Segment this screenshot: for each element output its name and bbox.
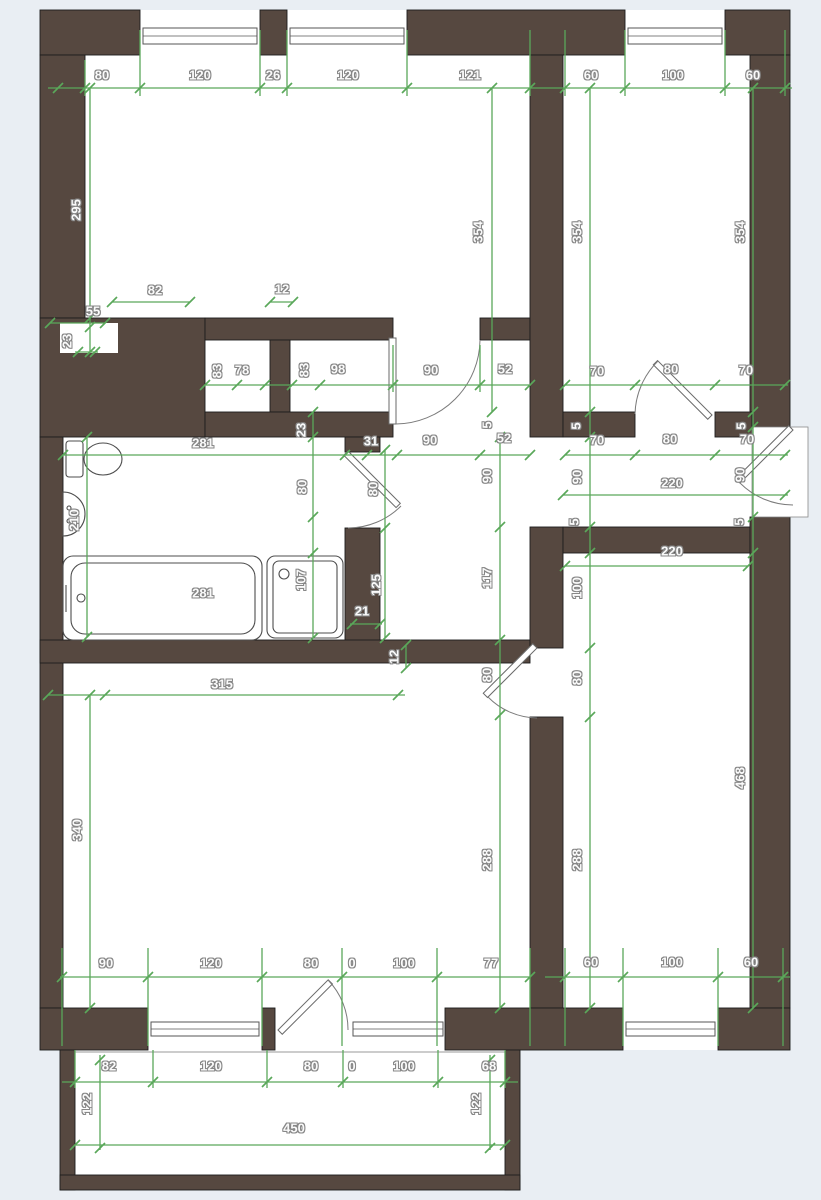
dimension-label: 121 xyxy=(459,69,481,82)
window xyxy=(290,28,404,44)
dimension-label: 450 xyxy=(283,1122,305,1135)
dimension-label: 70 xyxy=(590,365,604,378)
dimension-label: 98 xyxy=(331,363,345,376)
dimension-label: 21 xyxy=(355,605,369,618)
dimension-label: 120 xyxy=(337,69,359,82)
dimension-label: 12 xyxy=(275,283,289,296)
window xyxy=(143,28,257,44)
bathtub xyxy=(63,556,262,640)
dimension-label: 90 xyxy=(99,957,113,970)
dimension-label: 288 xyxy=(481,849,494,871)
dimension-label: 100 xyxy=(393,957,415,970)
window xyxy=(626,1022,715,1036)
floor-plan-drawing xyxy=(0,0,821,1200)
window xyxy=(628,28,722,44)
dimension-label: 295 xyxy=(70,199,83,221)
dimension-label: 281 xyxy=(192,437,214,450)
dimension-label: 80 xyxy=(304,1060,318,1073)
dimension-label: 70 xyxy=(739,364,753,377)
dimension-label: 52 xyxy=(497,432,511,445)
dimension-label: 90 xyxy=(424,364,438,377)
dimension-label: 125 xyxy=(370,574,383,596)
dimension-label: 354 xyxy=(472,221,485,243)
dimension-label: 23 xyxy=(61,334,74,348)
dimension-label: 220 xyxy=(661,545,683,558)
dimension-label: 60 xyxy=(744,956,758,969)
dimension-label: 288 xyxy=(571,849,584,871)
dimension-label: 468 xyxy=(734,767,747,789)
dimension-label: 340 xyxy=(71,819,84,841)
window xyxy=(353,1022,443,1036)
dimension-label: 0 xyxy=(348,957,355,970)
dimension-label: 210 xyxy=(68,509,81,531)
dimension-label: 100 xyxy=(662,69,684,82)
dimension-label: 220 xyxy=(661,477,683,490)
dimension-label: 0 xyxy=(348,1060,355,1073)
dimension-label: 5 xyxy=(735,422,748,429)
dimension-label: 82 xyxy=(102,1060,116,1073)
dimension-label: 100 xyxy=(571,577,584,599)
dimension-label: 23 xyxy=(295,423,308,437)
window xyxy=(151,1022,259,1036)
dimension-label: 70 xyxy=(590,434,604,447)
dimension-label: 90 xyxy=(481,469,494,483)
dimension-label: 80 xyxy=(304,957,318,970)
dimension-label: 120 xyxy=(200,1060,222,1073)
dimension-label: 120 xyxy=(200,957,222,970)
dimension-label: 122 xyxy=(81,1093,94,1115)
dimension-label: 90 xyxy=(423,434,437,447)
dimension-label: 83 xyxy=(211,364,224,378)
dimension-label: 5 xyxy=(481,421,494,428)
dimension-label: 55 xyxy=(86,305,100,318)
dimension-label: 80 xyxy=(571,671,584,685)
dimension-label: 122 xyxy=(470,1093,483,1115)
dimension-label: 82 xyxy=(148,284,162,297)
dimension-label: 80 xyxy=(367,482,380,496)
dimension-label: 80 xyxy=(664,363,678,376)
dimension-label: 100 xyxy=(393,1060,415,1073)
dimension-label: 77 xyxy=(484,957,498,970)
dimension-label: 5 xyxy=(570,422,583,429)
dimension-label: 315 xyxy=(211,678,233,691)
dimension-label: 80 xyxy=(296,480,309,494)
dimension-label: 354 xyxy=(734,221,747,243)
dimension-label: 80 xyxy=(95,69,109,82)
dimension-label: 26 xyxy=(266,69,280,82)
dimension-label: 78 xyxy=(235,364,249,377)
toilet xyxy=(66,441,122,477)
dimension-label: 107 xyxy=(295,569,308,591)
dimension-label: 70 xyxy=(740,433,754,446)
dimension-label: 68 xyxy=(482,1060,496,1073)
dimension-label: 31 xyxy=(364,435,378,448)
dimension-label: 60 xyxy=(584,69,598,82)
dimension-label: 80 xyxy=(481,668,494,682)
dimension-label: 80 xyxy=(663,433,677,446)
floor-plan-canvas: 8012026120121601006029535435435482125523… xyxy=(0,0,821,1200)
dimension-label: 52 xyxy=(498,363,512,376)
dimension-label: 60 xyxy=(584,956,598,969)
dimension-label: 83 xyxy=(298,363,311,377)
dimension-label: 100 xyxy=(661,956,683,969)
dimension-label: 12 xyxy=(388,650,401,664)
dimension-label: 5 xyxy=(733,518,746,525)
dimension-label: 5 xyxy=(568,518,581,525)
dimension-label: 90 xyxy=(571,470,584,484)
dimension-label: 90 xyxy=(734,468,747,482)
dimension-label: 117 xyxy=(481,568,494,589)
dimension-label: 354 xyxy=(571,221,584,243)
dimension-label: 281 xyxy=(192,587,214,600)
dimension-label: 60 xyxy=(746,69,760,82)
dimension-label: 120 xyxy=(189,69,211,82)
